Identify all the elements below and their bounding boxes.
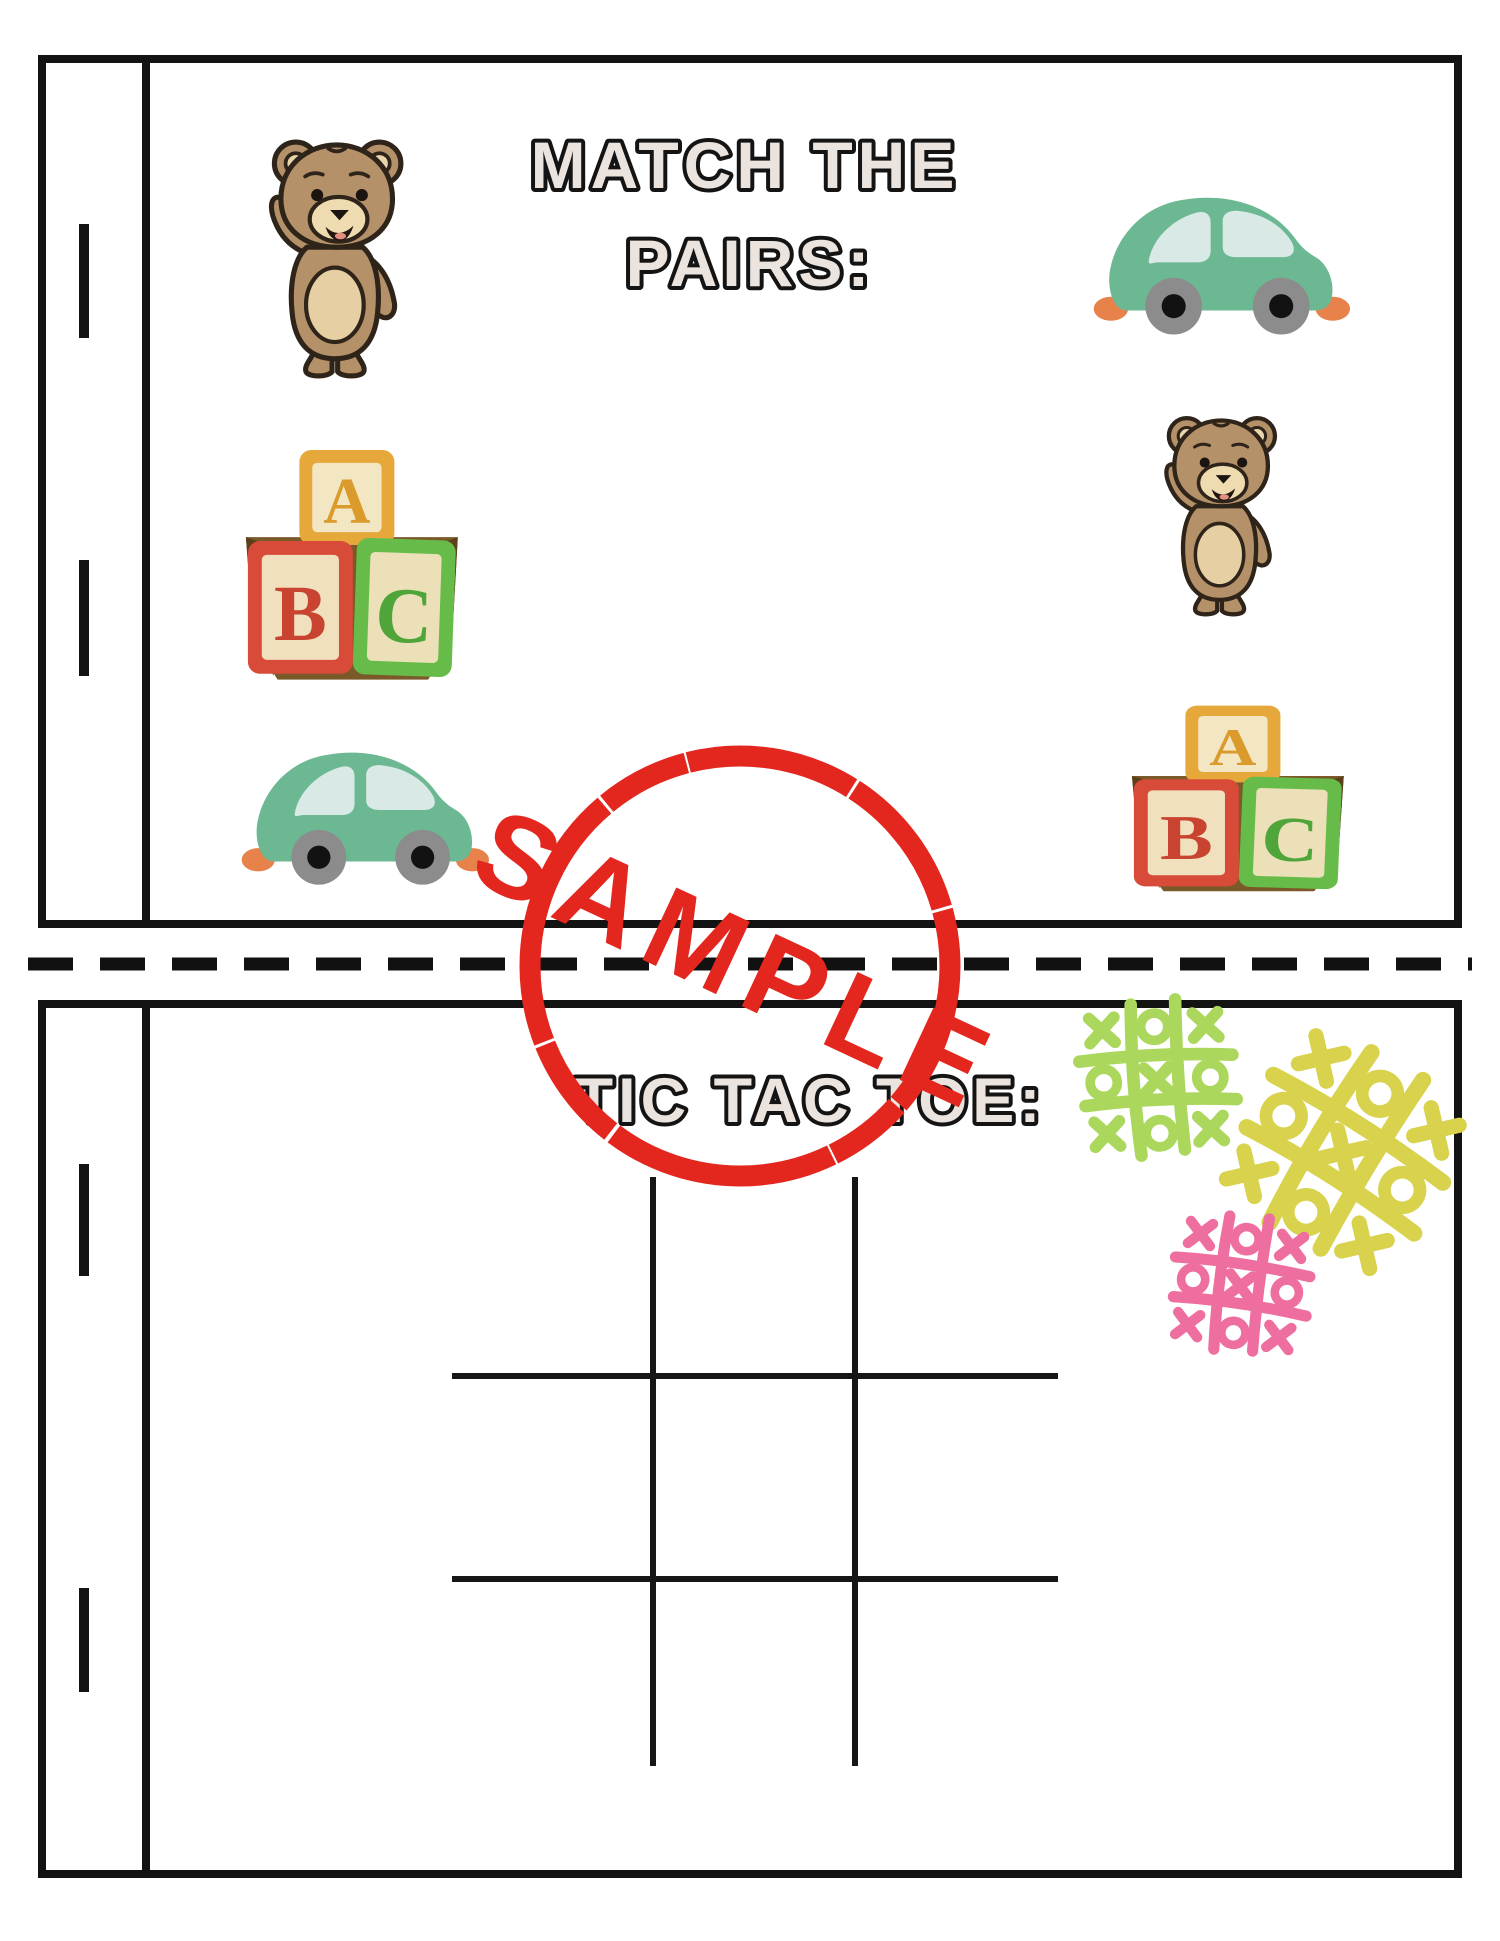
teddy-bear-image [1166, 418, 1275, 614]
abc-blocks-image [246, 450, 458, 680]
tic-tac-toe-grid [452, 1177, 1058, 1766]
teddy-bear-image [271, 142, 400, 376]
binding-mark [79, 224, 89, 338]
toy-car-image [242, 753, 489, 885]
match-the-pairs-title-line2: PAIRS: [626, 226, 875, 300]
abc-blocks-image [1132, 706, 1344, 892]
printable-worksheet-page: A B C [0, 0, 1500, 1941]
toy-car-image [1094, 198, 1350, 335]
binding-mark [79, 1588, 89, 1692]
tic-tac-toe-doodle-green [1076, 996, 1239, 1158]
binding-mark [79, 1164, 89, 1276]
binding-mark [79, 560, 89, 676]
match-the-pairs-title-line1: MATCH THE [531, 128, 960, 202]
